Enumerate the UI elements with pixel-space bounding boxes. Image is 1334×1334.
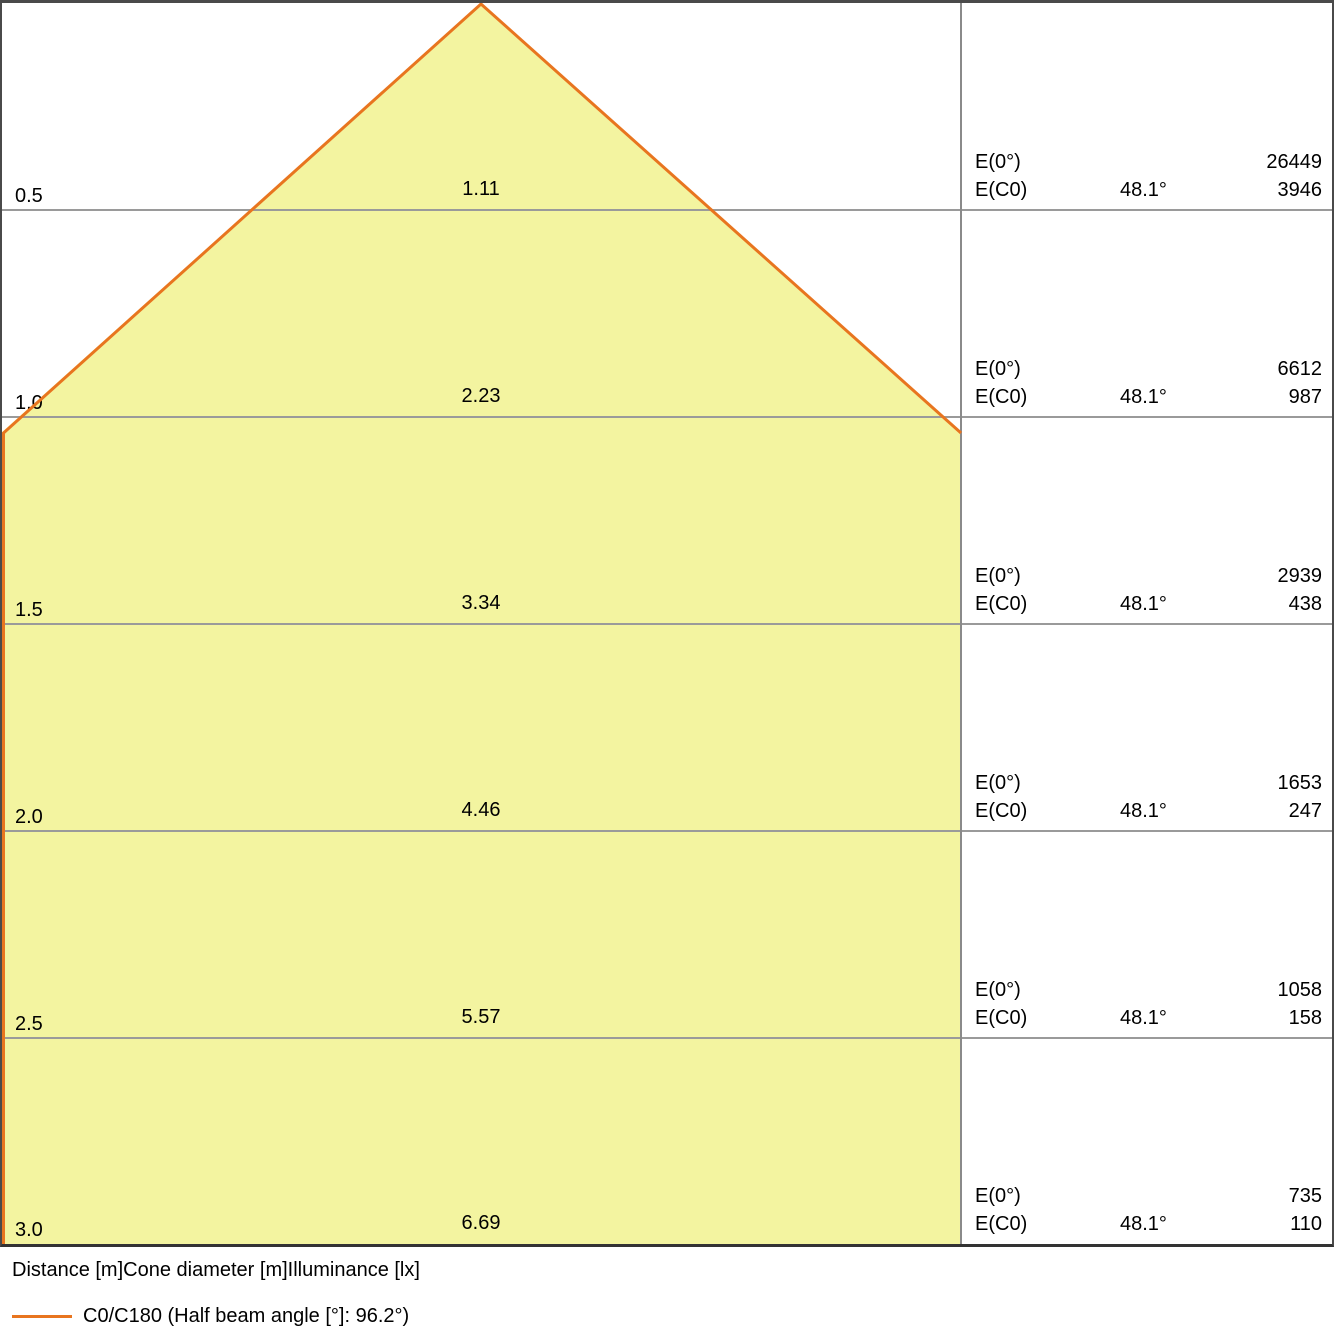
light-cone-diagram: 0.5 1.11 E(0°)26449 E(C0)48.1°3946 1.0 2… [0,0,1334,1334]
cone-row-0.5m: 0.5 1.11 E(0°)26449 E(C0)48.1°3946 [2,3,1332,210]
ec0-label: E(C0) [975,176,1120,204]
e0-label: E(0°) [975,1182,1120,1210]
e0-label: E(0°) [975,355,1120,383]
legend-row: C0/C180 (Half beam angle [°]: 96.2°) [12,1304,409,1328]
illuminance-cell: E(0°)2939 E(C0)48.1°438 [975,562,1322,618]
cone-row-3.0m: 3.0 6.69 E(0°)735 E(C0)48.1°110 [2,1037,1332,1244]
cone-diameter-label: 1.11 [2,178,960,200]
ec0-label: E(C0) [975,1210,1120,1238]
e0-value: 1653 [1278,769,1323,797]
ec0-label: E(C0) [975,383,1120,411]
e0-label: E(0°) [975,148,1120,176]
cone-row-1.0m: 1.0 2.23 E(0°)6612 E(C0)48.1°987 [2,210,1332,417]
cone-row-1.5m: 1.5 3.34 E(0°)2939 E(C0)48.1°438 [2,417,1332,624]
ec0-value: 158 [1289,1004,1322,1032]
e0-value: 1058 [1278,976,1323,1004]
e0-value: 2939 [1278,562,1323,590]
beam-angle-value: 48.1° [1120,1004,1167,1032]
diagram-frame: 0.5 1.11 E(0°)26449 E(C0)48.1°3946 1.0 2… [0,0,1334,1247]
e0-label: E(0°) [975,976,1120,1004]
beam-angle-value: 48.1° [1120,797,1167,825]
cone-diameter-label: 5.57 [2,1006,960,1028]
e0-label: E(0°) [975,769,1120,797]
illuminance-cell: E(0°)1653 E(C0)48.1°247 [975,769,1322,825]
e0-value: 26449 [1266,148,1322,176]
e0-value: 6612 [1278,355,1323,383]
beam-angle-value: 48.1° [1120,1210,1167,1238]
illuminance-cell: E(0°)735 E(C0)48.1°110 [975,1182,1322,1238]
ec0-value: 3946 [1278,176,1323,204]
e0-label: E(0°) [975,562,1120,590]
illuminance-cell: E(0°)6612 E(C0)48.1°987 [975,355,1322,411]
beam-angle-value: 48.1° [1120,383,1167,411]
illuminance-cell: E(0°)1058 E(C0)48.1°158 [975,976,1322,1032]
cone-diameter-label: 2.23 [2,385,960,407]
cone-diameter-label: 3.34 [2,592,960,614]
cone-row-2.5m: 2.5 5.57 E(0°)1058 E(C0)48.1°158 [2,831,1332,1038]
ec0-label: E(C0) [975,1004,1120,1032]
ec0-label: E(C0) [975,590,1120,618]
legend-label: C0/C180 (Half beam angle [°]: 96.2°) [83,1304,409,1328]
cone-row-2.0m: 2.0 4.46 E(0°)1653 E(C0)48.1°247 [2,624,1332,831]
ec0-label: E(C0) [975,797,1120,825]
illuminance-cell: E(0°)26449 E(C0)48.1°3946 [975,148,1322,204]
ec0-value: 247 [1289,797,1322,825]
cone-diameter-label: 6.69 [2,1212,960,1234]
axis-caption: Distance [m]Cone diameter [m]Illuminance… [12,1258,420,1282]
legend-line-icon [12,1315,72,1318]
e0-value: 735 [1289,1182,1322,1210]
ec0-value: 438 [1289,590,1322,618]
ec0-value: 110 [1290,1210,1322,1238]
beam-angle-value: 48.1° [1120,590,1167,618]
cone-diameter-label: 4.46 [2,799,960,821]
beam-angle-value: 48.1° [1120,176,1167,204]
ec0-value: 987 [1289,383,1322,411]
